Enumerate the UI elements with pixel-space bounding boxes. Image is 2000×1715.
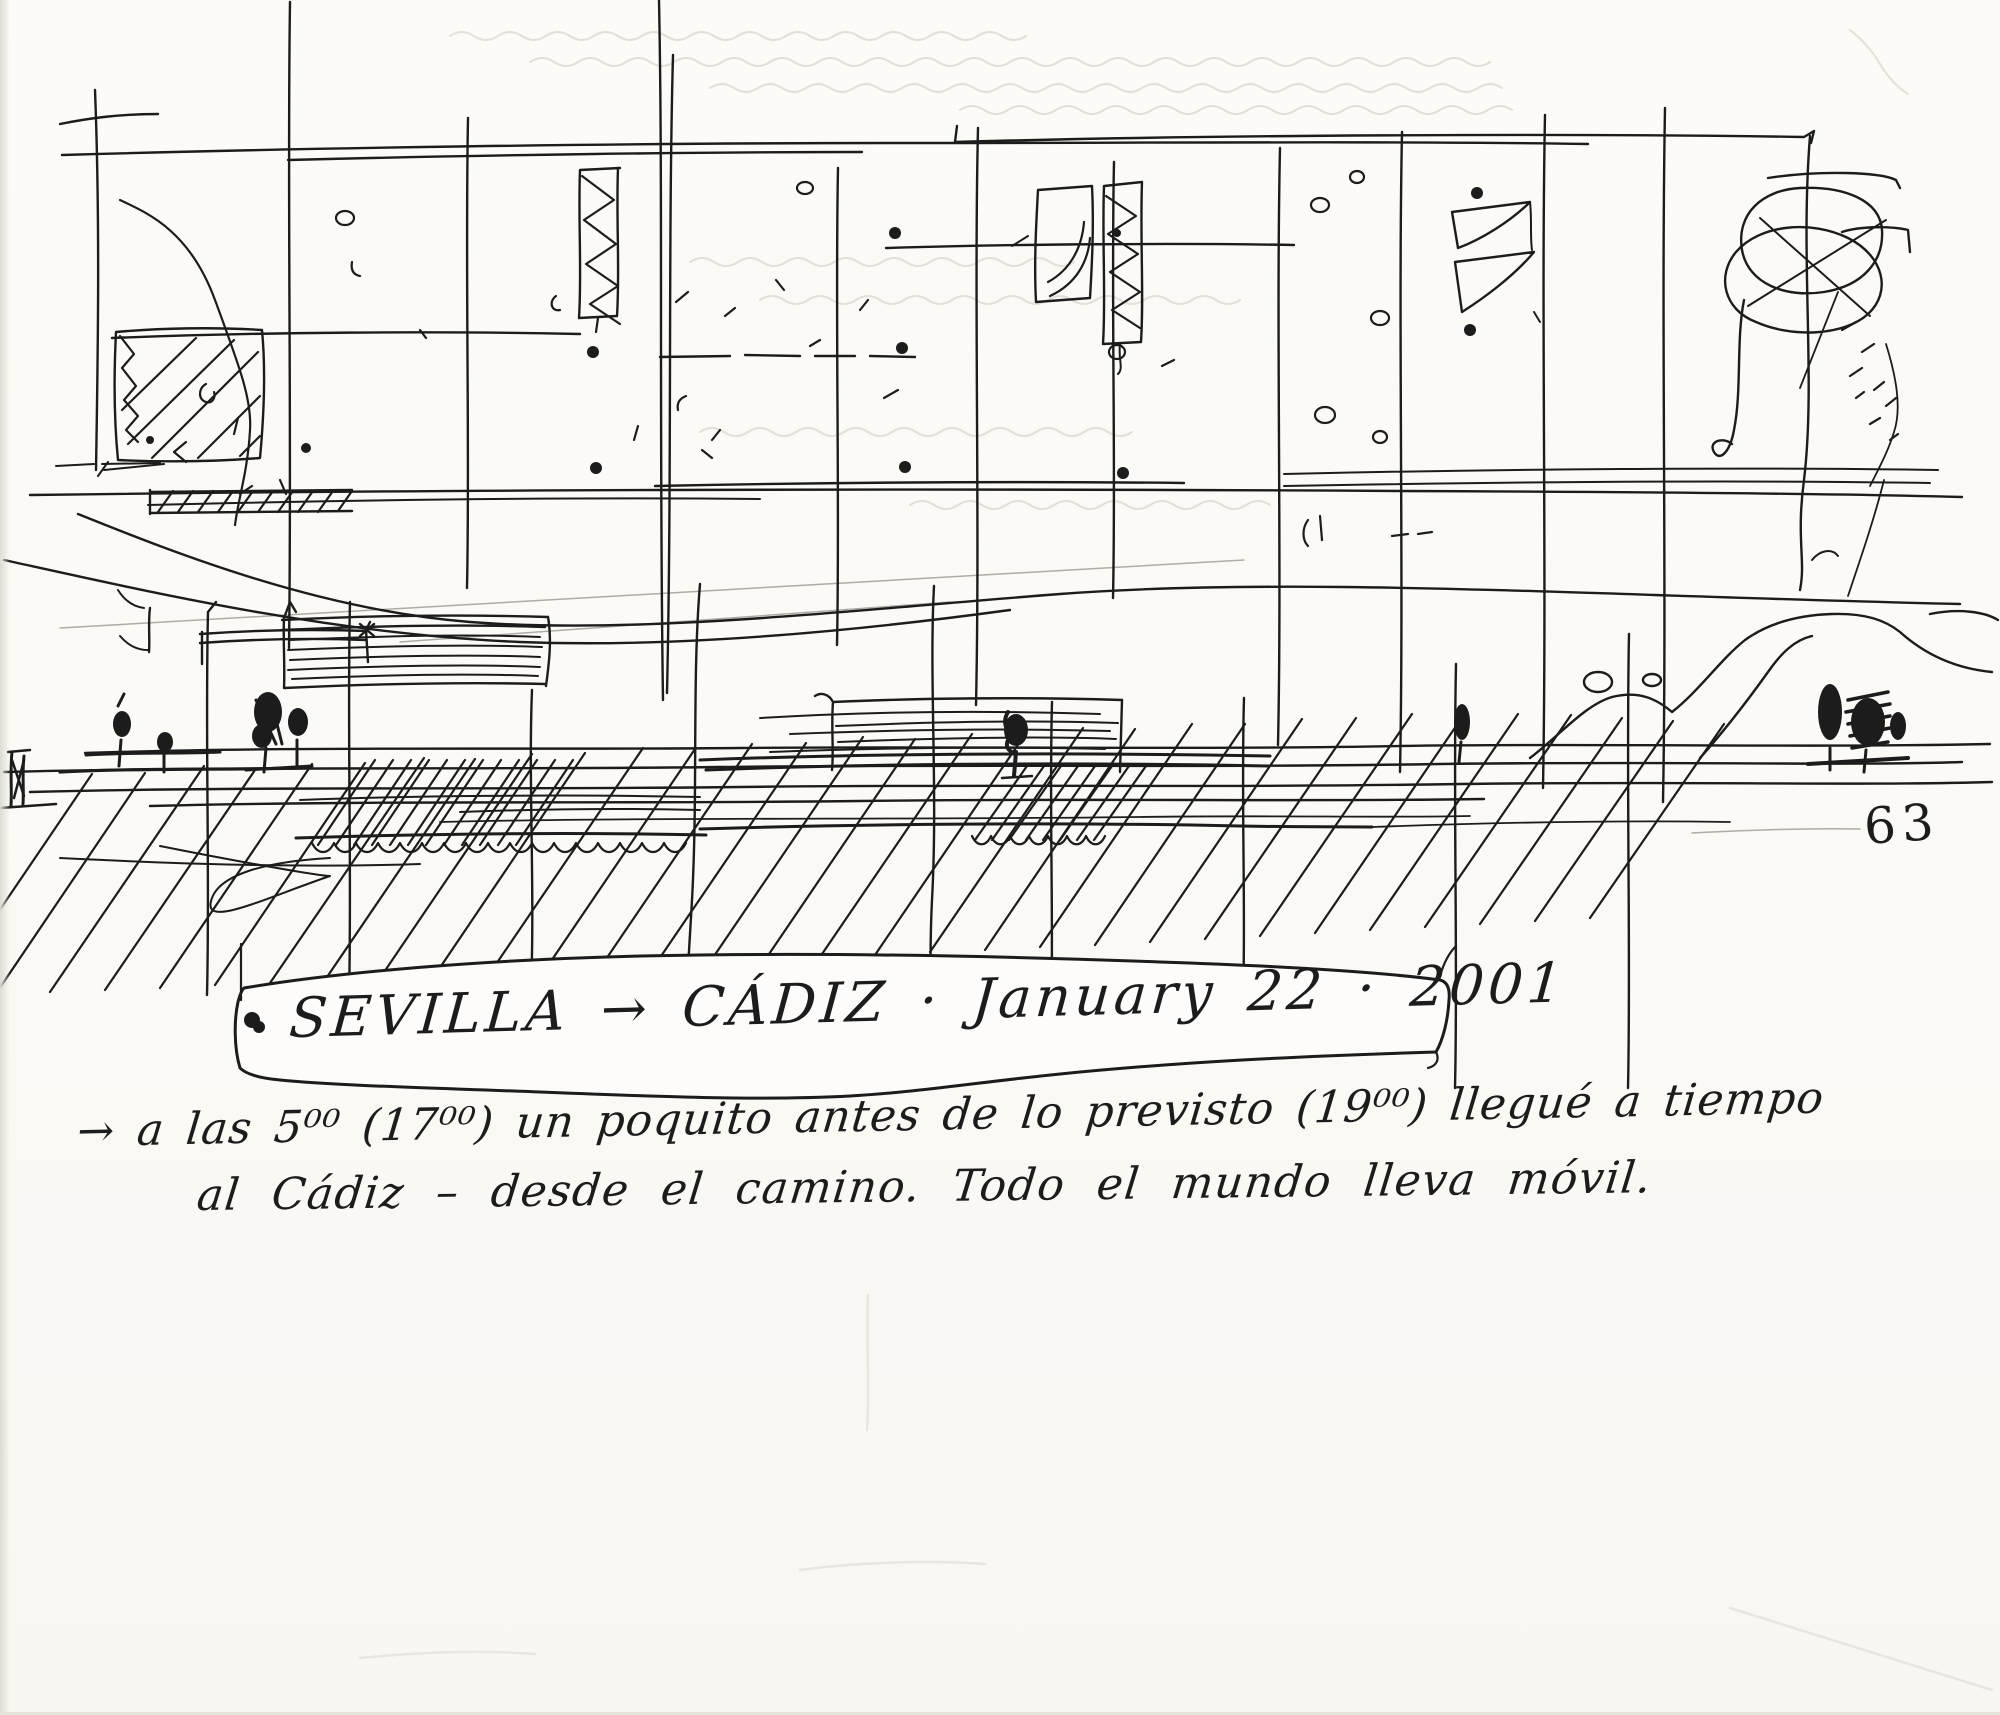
hatched-square <box>98 328 264 476</box>
scan-edge-shadow <box>0 0 10 1715</box>
sketch-drawing <box>0 0 2000 1715</box>
building-elevation-block <box>700 694 1270 772</box>
top-grid-verticals <box>60 0 1665 802</box>
zigzag-panel <box>579 168 620 324</box>
window-rectangles <box>1012 182 1142 374</box>
top-elevation-sketch <box>4 0 1962 802</box>
ground-lines <box>4 744 1992 822</box>
triangle-sails <box>1452 202 1540 322</box>
faint-paper-marks <box>360 1295 1992 1690</box>
loop-scribble <box>1713 173 1910 596</box>
dune-landforms <box>1530 611 1998 758</box>
page-number: 63 <box>1862 793 1941 856</box>
top-horizontals <box>30 126 1962 505</box>
sketchbook-page: SEVILLA → CÁDIZ · January 22 · 2001 → a … <box>0 0 2000 1715</box>
small-ticks-and-squiggles <box>120 200 1432 546</box>
